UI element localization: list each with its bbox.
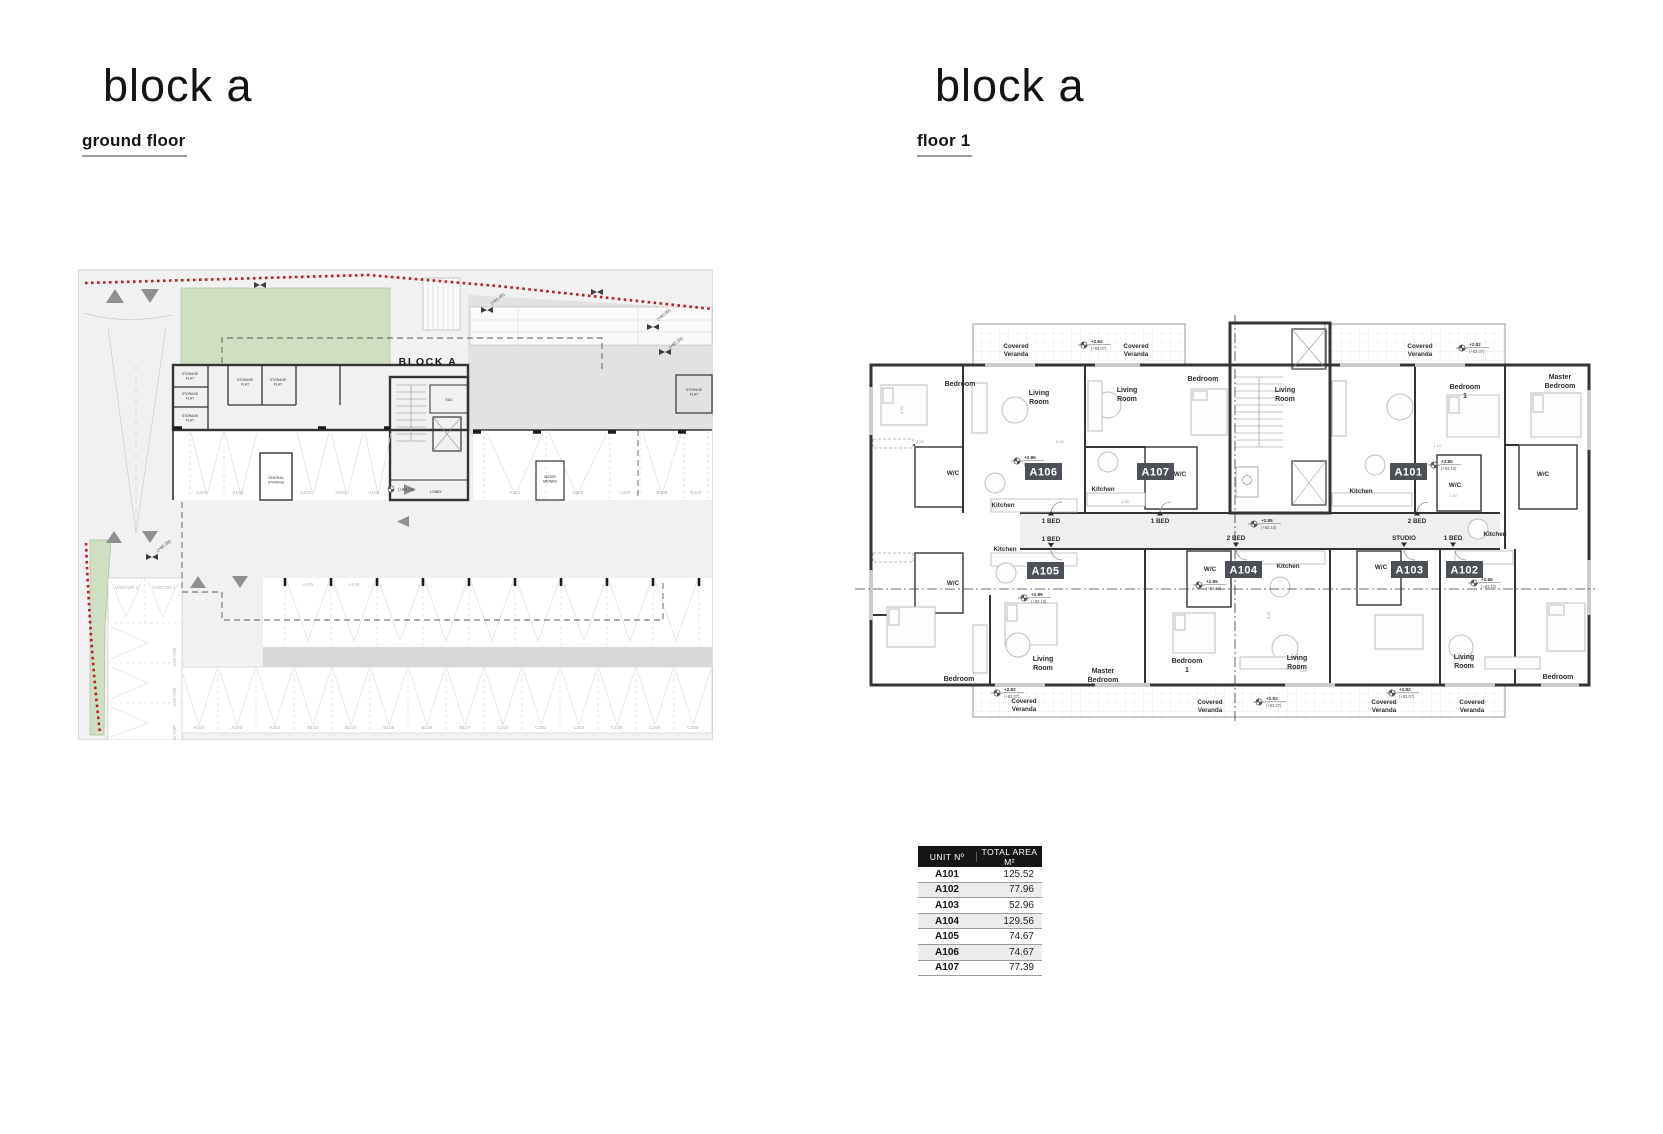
area-cell: 77.96 [976,884,1041,895]
lobby-label: LOBBY [430,490,442,494]
svg-text:1.10: 1.10 [1433,443,1442,448]
svg-text:A106: A106 [348,582,360,587]
svg-text:Bedroom: Bedroom [1088,677,1119,684]
svg-text:W/C: W/C [1449,482,1462,489]
table-row: A10574.67 [918,929,1042,945]
plan-sheet: { "left_panel": {"title": "block a", "su… [0,0,1663,1134]
svg-text:B303: B303 [690,490,702,495]
svg-text:2 BED: 2 BED [1408,518,1427,525]
svg-text:C302: C302 [573,725,585,730]
svg-text:Living: Living [1454,654,1475,661]
svg-text:(+83.07): (+83.07) [1469,349,1485,354]
table-row: A104129.56 [918,914,1042,930]
svg-text:A302: A302 [572,490,584,495]
svg-text:A103: A103 [193,725,205,730]
walkway-band [263,647,712,667]
area-cell: 74.67 [976,931,1041,942]
svg-text:Room: Room [1029,399,1049,406]
svg-text:Room: Room [1275,396,1295,403]
svg-text:1: 1 [1463,393,1467,400]
right-title: block a [935,60,1085,112]
svg-text:A201: A201 [300,490,312,495]
svg-text:1 BED: 1 BED [1151,518,1170,525]
svg-text:B305: B305 [656,490,668,495]
svg-text:METERS: METERS [543,480,558,484]
svg-text:Veranda: Veranda [1012,706,1037,713]
svg-text:Veranda: Veranda [1460,707,1485,714]
svg-text:(+83.07): (+83.07) [1266,703,1282,708]
unit-a101: A101 [1395,467,1423,479]
unit-cell: A104 [918,916,976,927]
svg-text:Living: Living [1029,390,1050,397]
unit-a104: A104 [1230,565,1258,577]
svg-text:W/C: W/C [1537,471,1550,478]
svg-text:+2.85: +2.85 [1031,592,1043,597]
svg-text:FLAT: FLAT [690,393,698,397]
unit-a102: A102 [1451,565,1479,577]
svg-text:(+83.10): (+83.10) [1261,525,1277,530]
svg-text:CENTRAL: CENTRAL [268,476,284,480]
svg-text:STORAGE: STORAGE [237,378,254,382]
svg-text:Bedroom: Bedroom [1543,674,1574,681]
svg-text:2 BED: 2 BED [1227,535,1246,542]
svg-text:(+83.10): (+83.10) [1031,599,1047,604]
svg-text:1.30: 1.30 [1121,499,1130,504]
level-marker [388,486,394,492]
svg-text:Covered: Covered [1197,699,1222,706]
header-area: TOTAL AREA M² [977,847,1042,867]
svg-text:A304: A304 [196,490,208,495]
svg-text:Room: Room [1033,665,1053,672]
svg-text:A303: A303 [619,490,631,495]
table-row: A10674.67 [918,945,1042,961]
svg-text:1 BED: 1 BED [1042,536,1061,543]
svg-text:C305: C305 [687,725,699,730]
svg-text:(+83.07): (+83.07) [1004,694,1020,699]
svg-text:STORAGE: STORAGE [182,392,199,396]
svg-text:Covered: Covered [1371,699,1396,706]
unit-cell: A101 [918,869,976,880]
svg-text:Master: Master [1549,374,1572,381]
svg-text:C205: C205 [649,725,661,730]
level-label: (+80.25) [398,487,415,492]
svg-text:STORAGE: STORAGE [182,414,199,418]
svg-text:3.20: 3.20 [916,439,925,444]
svg-text:W/C: W/C [1375,564,1388,571]
ground-floor-plan: (+81.45) (+80.95) (+80.20) (+80.20) (+80… [78,265,713,740]
svg-text:VISITOR: VISITOR [172,687,177,706]
table-row: A10277.96 [918,883,1042,899]
svg-text:(+83.07): (+83.07) [1091,346,1107,351]
svg-text:5.65: 5.65 [1266,610,1271,619]
svg-text:Veranda: Veranda [1124,351,1149,358]
svg-text:Kitchen: Kitchen [993,546,1016,553]
unit-a107: A107 [1142,467,1170,479]
svg-text:Living: Living [1033,656,1054,663]
svg-text:Kitchen: Kitchen [1483,531,1506,538]
unit-cell: A107 [918,962,976,973]
svg-text:Room: Room [1454,663,1474,670]
unit-a106: A106 [1030,467,1058,479]
area-cell: 125.52 [976,869,1041,880]
svg-text:FLAT: FLAT [186,377,194,381]
svg-text:Covered: Covered [1011,698,1036,705]
svg-text:VISITOR: VISITOR [172,647,177,666]
svg-text:W/C: W/C [1174,471,1187,478]
svg-text:Bedroom: Bedroom [1545,383,1576,390]
unit-cell: A103 [918,900,976,911]
svg-text:B103: B103 [345,725,357,730]
accessible-wc [1236,467,1258,497]
svg-text:VISITOR: VISITOR [172,725,177,740]
svg-text:FLAT: FLAT [274,383,282,387]
svg-text:Master: Master [1092,668,1115,675]
svg-text:3.70: 3.70 [899,405,904,414]
svg-text:Living: Living [1287,655,1308,662]
svg-text:(+83.10): (+83.10) [1481,584,1497,589]
svg-text:Kitchen: Kitchen [1349,488,1372,495]
svg-text:Living: Living [1275,387,1296,394]
corridor [1020,513,1500,549]
svg-text:Veranda: Veranda [1004,351,1029,358]
svg-text:+2.82: +2.82 [1091,339,1103,344]
svg-text:FLAT: FLAT [186,419,194,423]
svg-text:1 BED: 1 BED [1042,518,1061,525]
area-cell: 77.39 [976,962,1041,973]
svg-text:+2.85: +2.85 [1261,518,1273,523]
svg-text:STORAGE: STORAGE [270,378,287,382]
svg-text:WATER: WATER [544,475,556,479]
svg-text:(+83.07): (+83.07) [1399,694,1415,699]
svg-text:+2.85: +2.85 [1481,577,1493,582]
svg-text:STORAGE: STORAGE [268,481,285,485]
svg-text:Bedroom: Bedroom [1450,384,1481,391]
svg-text:B107: B107 [459,725,471,730]
svg-text:B102: B102 [307,725,319,730]
unit-area-table: UNIT Nº TOTAL AREA M² A101125.52 A10277.… [918,846,1042,976]
area-cell: 74.67 [976,947,1041,958]
svg-text:A101: A101 [368,490,380,495]
svg-text:+2.85: +2.85 [1024,455,1036,460]
svg-text:Living: Living [1117,387,1138,394]
svg-text:+2.82: +2.82 [1469,342,1481,347]
svg-text:(+83.10): (+83.10) [1441,466,1457,471]
svg-text:Room: Room [1117,396,1137,403]
svg-text:+2.85: +2.85 [1206,579,1218,584]
table-row: A101125.52 [918,867,1042,883]
eac-label: EAC [446,398,454,402]
svg-text:B105: B105 [383,725,395,730]
svg-text:4.85: 4.85 [1299,668,1308,673]
green-area-top [181,288,390,365]
svg-text:Kitchen: Kitchen [1276,563,1299,570]
svg-text:Covered: Covered [1003,343,1028,350]
svg-text:Covered: Covered [1123,343,1148,350]
svg-text:+2.82: +2.82 [1266,696,1278,701]
area-cell: 129.56 [976,916,1041,927]
unit-a103: A103 [1396,565,1424,577]
svg-text:Kitchen: Kitchen [991,502,1014,509]
svg-text:1: 1 [1185,667,1189,674]
svg-text:C102: C102 [497,725,509,730]
svg-text:A301: A301 [269,725,281,730]
svg-text:B106: B106 [421,725,433,730]
svg-text:Covered: Covered [1407,343,1432,350]
table-row: A10777.39 [918,961,1042,977]
svg-text:Veranda: Veranda [1372,707,1397,714]
svg-text:STUDIO: STUDIO [1392,535,1416,542]
area-cell: 52.96 [976,900,1041,911]
svg-text:STORAGE: STORAGE [182,372,199,376]
svg-text:FLAT: FLAT [186,397,194,401]
svg-text:1 BED: 1 BED [1444,535,1463,542]
unit-a105: A105 [1032,566,1060,578]
floor1-plan: A106 A107 A101 A105 A104 A103 A102 Bedro… [855,315,1595,725]
svg-text:C105: C105 [611,725,623,730]
svg-text:W/C: W/C [947,470,960,477]
svg-text:C202: C202 [535,725,547,730]
svg-text:W/C: W/C [1204,566,1217,573]
unit-cell: A102 [918,884,976,895]
svg-text:Bedroom: Bedroom [1172,658,1203,665]
svg-text:+2.82: +2.82 [1004,687,1016,692]
svg-text:Bedroom: Bedroom [944,676,975,683]
svg-text:A203: A203 [231,725,243,730]
svg-text:A105: A105 [302,582,314,587]
svg-text:Bedroom: Bedroom [1188,376,1219,383]
svg-text:Covered: Covered [1459,699,1484,706]
svg-text:A301: A301 [509,490,521,495]
svg-text:6.25: 6.25 [1056,439,1065,444]
svg-text:2.80: 2.80 [1449,493,1458,498]
svg-text:+2.82: +2.82 [1399,687,1411,692]
svg-text:(+83.10): (+83.10) [1206,586,1222,591]
svg-text:(+83.10): (+83.10) [1024,462,1040,467]
svg-text:Bedroom: Bedroom [945,381,976,388]
block-a-label: BLOCK A [399,356,458,368]
svg-text:Veranda: Veranda [1198,707,1223,714]
table-row: A10352.96 [918,898,1042,914]
svg-text:Veranda: Veranda [1408,351,1433,358]
left-subtitle: ground floor [82,131,187,157]
table-header: UNIT Nº TOTAL AREA M² [918,846,1042,867]
svg-text:VISITOR 2: VISITOR 2 [152,585,176,590]
svg-text:A104: A104 [232,490,244,495]
header-unit: UNIT Nº [918,852,977,862]
svg-text:STORAGE: STORAGE [686,388,703,392]
svg-text:+2.85: +2.85 [1441,459,1453,464]
unit-cell: A106 [918,947,976,958]
svg-text:FLAT: FLAT [241,383,249,387]
svg-text:VISITOR 1: VISITOR 1 [115,585,139,590]
svg-text:Kitchen: Kitchen [1091,486,1114,493]
right-subtitle: floor 1 [917,131,972,157]
unit-cell: A105 [918,931,976,942]
svg-text:A204: A204 [335,490,347,495]
svg-text:W/C: W/C [947,580,960,587]
left-title: block a [103,60,253,112]
